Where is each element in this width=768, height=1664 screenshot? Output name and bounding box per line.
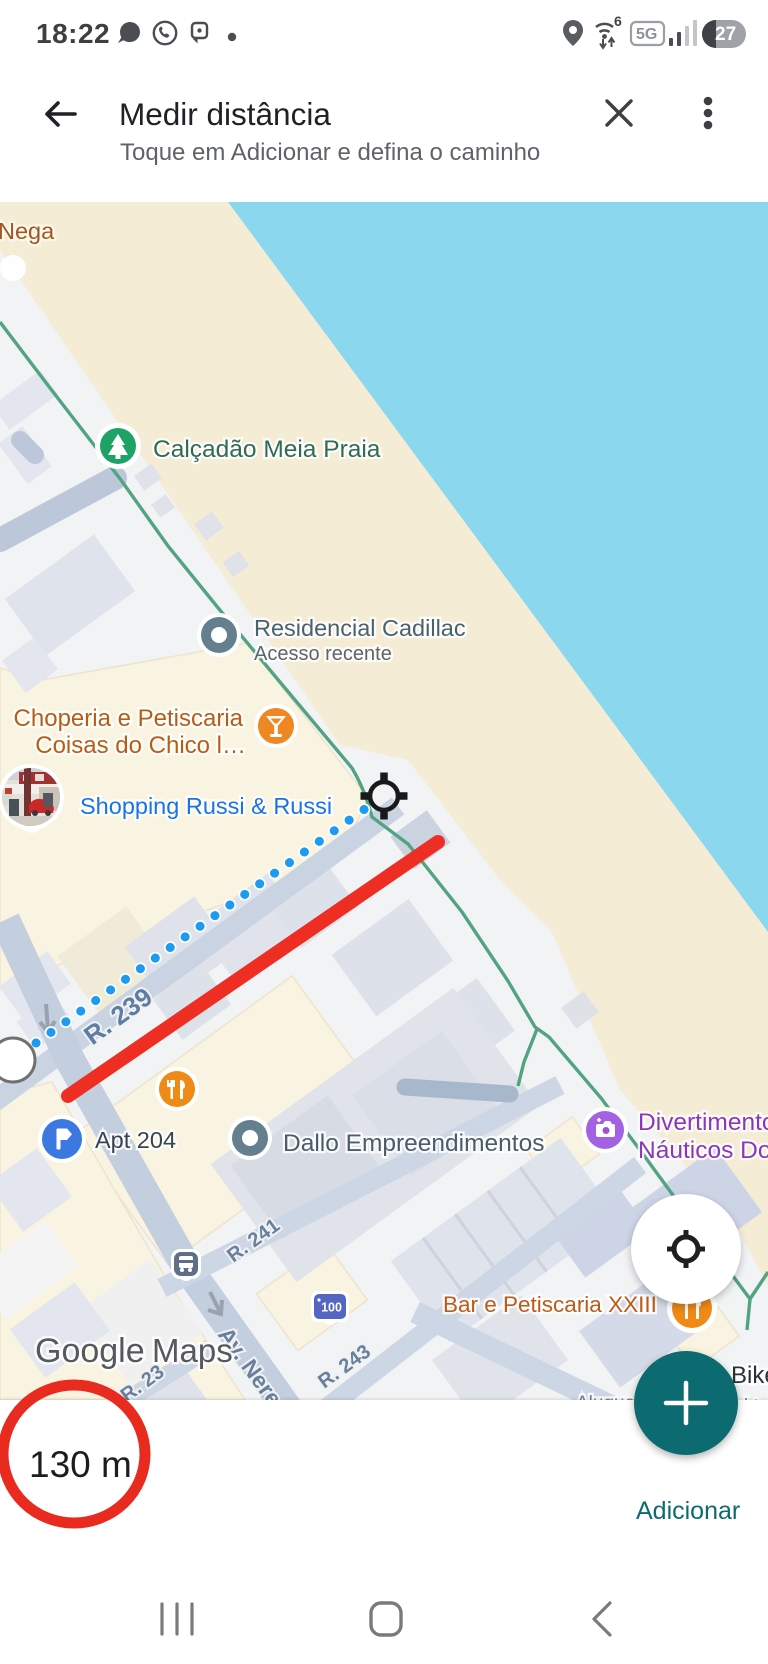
svg-text:27: 27 bbox=[715, 24, 736, 45]
svg-text:6: 6 bbox=[614, 14, 622, 29]
svg-text:5G: 5G bbox=[636, 26, 657, 43]
svg-text:Bar e Petiscaria XXIII: Bar e Petiscaria XXIII bbox=[443, 1292, 657, 1317]
svg-text:Coisas do Chico l…: Coisas do Chico l… bbox=[35, 732, 246, 759]
svg-text:100: 100 bbox=[321, 1301, 342, 1315]
svg-text:Dallo Empreendimentos: Dallo Empreendimentos bbox=[283, 1130, 544, 1157]
svg-text:Nega: Nega bbox=[0, 218, 55, 244]
svg-text:Shopping Russi & Russi: Shopping Russi & Russi bbox=[80, 793, 332, 819]
svg-text:Acesso recente: Acesso recente bbox=[254, 643, 392, 665]
svg-text:Google: Google bbox=[35, 1332, 145, 1370]
svg-text:Maps: Maps bbox=[152, 1332, 233, 1369]
svg-text:Residencial Cadillac: Residencial Cadillac bbox=[254, 615, 466, 641]
svg-text:Calçadão Meia Praia: Calçadão Meia Praia bbox=[153, 436, 381, 463]
svg-text:Bike: Bike bbox=[731, 1362, 768, 1389]
svg-text:Apt 204: Apt 204 bbox=[95, 1127, 176, 1153]
svg-text:Choperia e Petiscaria: Choperia e Petiscaria bbox=[14, 705, 244, 732]
svg-text:Divertimento: Divertimento bbox=[638, 1109, 768, 1136]
svg-text:Náuticos Doc: Náuticos Doc bbox=[638, 1137, 768, 1164]
